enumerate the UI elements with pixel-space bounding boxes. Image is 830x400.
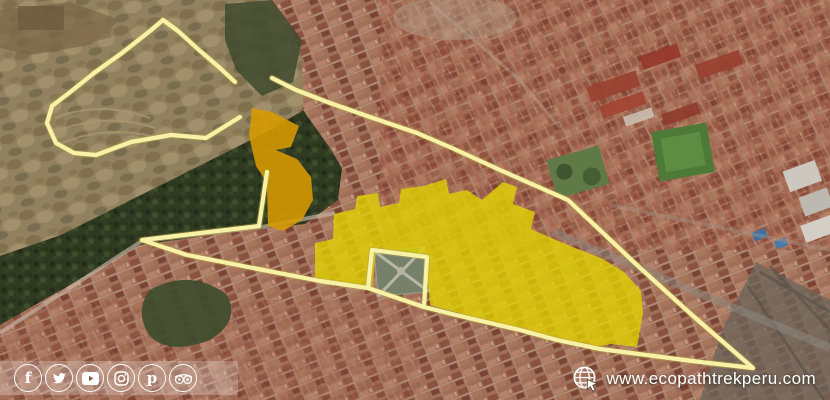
map-canvas[interactable]: f p www.ecopat [0,0,830,400]
globe-cursor-icon [572,365,599,392]
youtube-link[interactable] [76,364,104,392]
twitter-link[interactable] [45,364,73,392]
facebook-icon: f [25,371,31,386]
twitter-icon [51,370,67,386]
tripadvisor-link[interactable] [169,364,197,392]
satellite-map [0,0,830,400]
youtube-icon [82,372,99,385]
tripadvisor-icon [174,372,193,385]
instagram-icon [114,371,129,386]
social-links-bar: f p [0,361,238,395]
instagram-link[interactable] [107,364,135,392]
website-watermark: www.ecopathtrekperu.com [572,365,816,392]
facebook-link[interactable]: f [14,364,42,392]
pinterest-link[interactable]: p [138,364,166,392]
pinterest-icon: p [147,371,158,386]
website-url: www.ecopathtrekperu.com [606,369,816,389]
